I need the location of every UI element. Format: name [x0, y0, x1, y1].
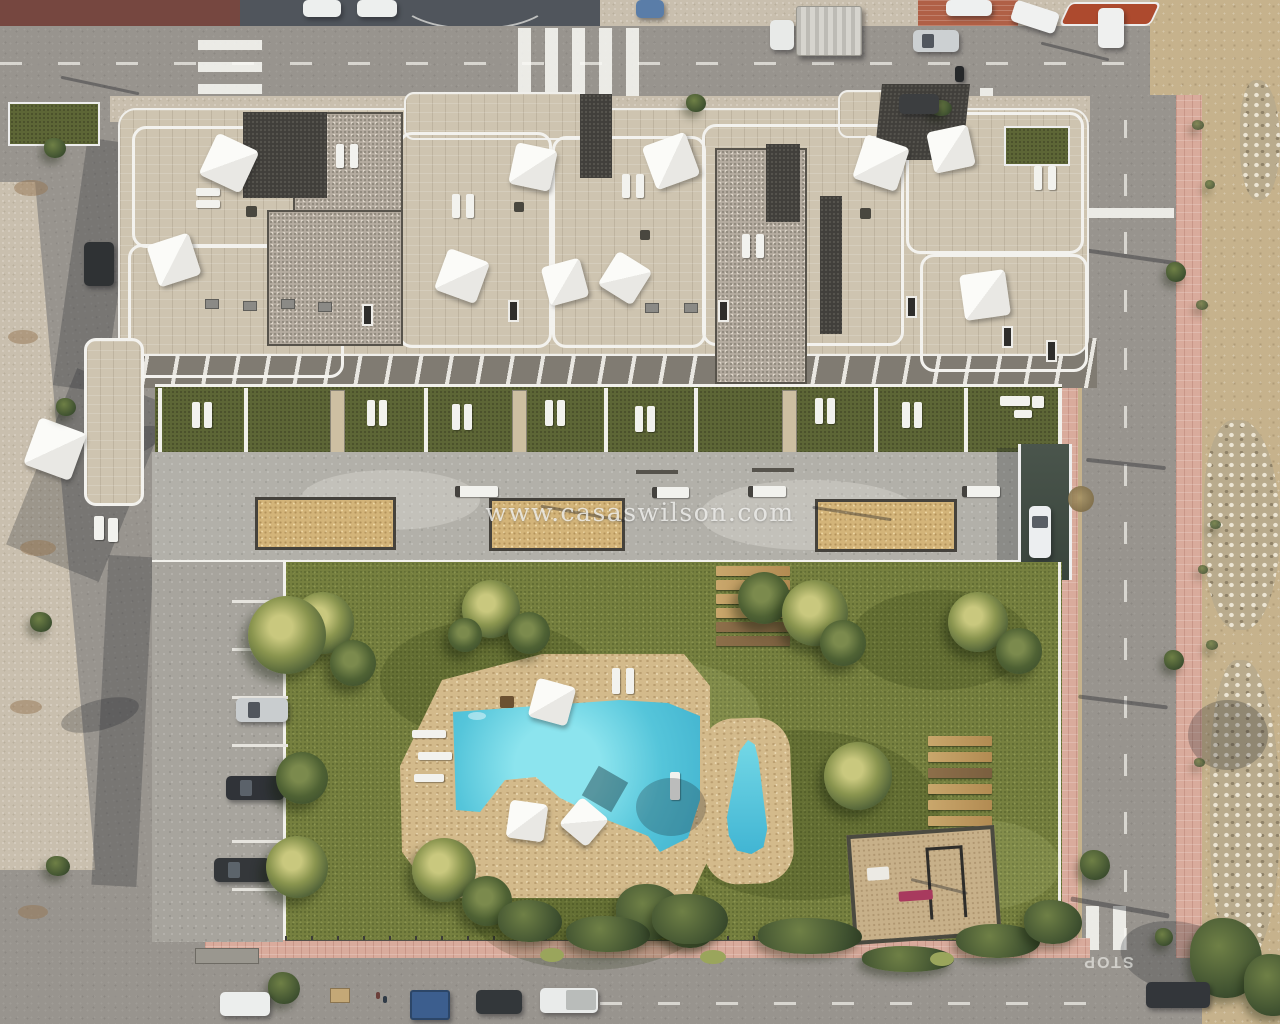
poolside-lounger — [418, 752, 452, 760]
parked-car — [220, 992, 270, 1016]
garden-lounger — [192, 402, 200, 428]
parked-car — [84, 242, 114, 286]
pool-steps — [468, 712, 486, 720]
right-road — [1082, 92, 1178, 1024]
garden-divider-wall — [244, 388, 248, 454]
sun-lounger — [336, 144, 344, 168]
garden-lounger — [367, 400, 375, 426]
wood-bench — [928, 800, 992, 810]
roof-vent — [243, 301, 257, 311]
pedestrian — [383, 996, 387, 1003]
street-tree — [1164, 650, 1184, 670]
aerial-development-render: www.casaswilson.com STOP — [0, 0, 1280, 1024]
sun-lounger — [196, 200, 220, 208]
stop-road-marking: STOP — [1078, 952, 1138, 970]
scrub-tuft — [1196, 300, 1208, 310]
scrub-tuft — [1198, 565, 1208, 574]
stairwell-core — [580, 94, 612, 178]
terrace-bench — [455, 486, 498, 497]
garden-divider-pillar — [512, 390, 527, 456]
playground-bench — [898, 889, 933, 901]
palm-tree — [820, 620, 866, 666]
moving-car — [913, 30, 959, 52]
parasol — [959, 269, 1011, 321]
parked-car — [1098, 8, 1124, 48]
bottom-road-center-line — [600, 1002, 1120, 1005]
rocky-ground-patch — [1240, 80, 1280, 200]
garden-lounger — [557, 400, 565, 426]
parasol — [506, 800, 549, 843]
palm-tree — [276, 752, 328, 804]
parked-car — [236, 698, 288, 722]
wood-bench — [928, 736, 992, 746]
terrace-bench — [748, 486, 786, 497]
palm-tree — [266, 836, 328, 898]
poolside-lounger — [414, 774, 444, 782]
roof-vent — [205, 299, 219, 309]
garden-lounger — [914, 402, 922, 428]
parked-car — [303, 0, 341, 17]
crosswalk-right-upper — [1084, 196, 1174, 218]
skylight-window — [718, 300, 729, 322]
pedestrian — [376, 992, 380, 999]
garden-divider-wall — [158, 388, 162, 454]
garden-lounger — [815, 398, 823, 424]
garden-lounger — [379, 400, 387, 426]
street-tree — [30, 612, 52, 632]
sun-lounger — [350, 144, 358, 168]
terrace-bench — [962, 486, 1000, 497]
sun-lounger — [1034, 166, 1042, 190]
garden-lounger — [647, 406, 655, 432]
skylight-window — [1046, 340, 1057, 362]
swing-frame-post — [959, 845, 967, 917]
terrace-table — [514, 202, 524, 212]
sun-lounger — [742, 234, 750, 258]
car-on-ramp — [1029, 506, 1051, 558]
street-tree — [1155, 928, 1173, 946]
right-road-east-sidewalk — [1176, 92, 1204, 1024]
poolside-table — [500, 696, 514, 708]
truck-cab — [770, 20, 794, 50]
parasol — [508, 142, 558, 192]
scrub-tuft — [1210, 520, 1221, 529]
car-windshield — [922, 34, 934, 48]
sun-lounger — [452, 194, 460, 218]
right-road-west-sidewalk — [1060, 310, 1078, 940]
motorcycle — [955, 66, 964, 82]
terrace-table — [640, 230, 650, 240]
palm-tree — [996, 628, 1042, 674]
wood-bench — [928, 752, 992, 762]
garden-sofa-set — [1000, 396, 1030, 406]
sand-planter-box — [815, 499, 957, 552]
roof-vent — [318, 302, 332, 312]
car-windshield — [248, 702, 260, 718]
car-windshield — [228, 862, 240, 878]
palm-tree — [508, 612, 550, 654]
garden-sofa-set — [1014, 410, 1032, 418]
pickup-bed — [566, 990, 596, 1010]
red-painted-pavement — [0, 0, 240, 28]
wood-bench — [928, 784, 992, 794]
poolside-lounger — [612, 668, 620, 694]
garden-lounger — [464, 404, 472, 430]
palm-tree — [824, 742, 892, 810]
lawn-east-wall — [1058, 562, 1061, 940]
skylight-window — [508, 300, 519, 322]
dirt-patch — [14, 180, 48, 196]
parked-van — [946, 0, 992, 16]
skylight-window — [1002, 326, 1013, 348]
dumpster — [410, 990, 450, 1020]
garden-divider-wall — [424, 388, 428, 454]
street-tree — [268, 972, 300, 1004]
sun-lounger — [466, 194, 474, 218]
sand-planter-box — [255, 497, 396, 550]
wood-bench — [928, 768, 992, 778]
street-tree — [1080, 850, 1110, 880]
crosswalk-top-left — [198, 30, 262, 94]
light-shrub — [700, 950, 726, 964]
hedge-bush — [566, 916, 650, 952]
stairwell-core — [820, 196, 842, 334]
palm-tree — [330, 640, 376, 686]
dirt-patch — [10, 700, 42, 714]
parked-car — [899, 94, 939, 114]
garden-divider-wall — [964, 388, 968, 454]
street-tree — [46, 856, 70, 876]
light-shrub — [930, 952, 954, 966]
sun-lounger — [108, 518, 118, 542]
top-road-center-line — [0, 62, 1280, 65]
sun-lounger — [196, 188, 220, 196]
garden-lounger — [635, 406, 643, 432]
sun-lounger — [636, 174, 644, 198]
dirt-patch — [8, 330, 38, 344]
scrub-tuft — [1205, 180, 1215, 189]
garden-top-wall — [155, 384, 1062, 387]
truck-container — [796, 6, 862, 56]
palm-shadow-on-deck — [636, 778, 706, 836]
parasol — [926, 124, 976, 174]
parking-space-line — [232, 744, 288, 747]
hedge-bush — [758, 918, 862, 954]
garden-divider-wall — [604, 388, 608, 454]
garden-lounger — [827, 398, 835, 424]
car-windshield — [1032, 516, 1048, 528]
play-table — [867, 866, 890, 881]
wood-step — [716, 636, 790, 646]
roof-palm-tuft — [686, 94, 706, 112]
palm-tree — [248, 596, 326, 674]
garden-lounger — [545, 400, 553, 426]
street-tree — [44, 138, 66, 158]
roof-vent — [684, 303, 698, 313]
crosswalk-top-main — [518, 28, 640, 96]
terrace-table — [246, 206, 257, 217]
palm-tree — [448, 618, 482, 652]
dirt-patch — [18, 905, 48, 919]
wood-bench — [928, 816, 992, 826]
street-tree — [56, 398, 76, 416]
stairwell-core — [766, 144, 800, 222]
poolside-lounger — [626, 668, 634, 694]
parked-car — [214, 858, 270, 882]
parked-car — [636, 0, 664, 18]
hedge-bush — [1024, 900, 1082, 944]
swing-frame-bar — [925, 845, 962, 851]
parked-car — [357, 0, 397, 17]
roof-vent — [281, 299, 295, 309]
street-tree — [1166, 262, 1186, 282]
dirt-patch — [20, 540, 56, 556]
garden-divider-wall — [874, 388, 878, 454]
gravel-roof-patch — [267, 210, 403, 346]
light-shrub — [540, 948, 564, 962]
garden-sofa-set — [1032, 396, 1044, 408]
private-gardens-row — [155, 386, 1062, 454]
hedge-bush — [498, 900, 562, 942]
bare-street-tree — [1068, 486, 1094, 512]
parked-car — [1146, 982, 1210, 1008]
sun-lounger — [94, 516, 104, 540]
wood-step — [716, 622, 790, 632]
skylight-window — [906, 296, 917, 318]
poolside-lounger — [412, 730, 446, 738]
concrete-block-bench — [195, 948, 259, 964]
scrub-tuft — [1192, 120, 1204, 130]
scrub-tuft — [1194, 758, 1205, 767]
garden-lounger — [452, 404, 460, 430]
garden-divider-pillar — [330, 390, 345, 456]
drain-strip — [636, 470, 678, 474]
scrub-tuft — [1206, 640, 1218, 650]
skylight-window — [362, 304, 373, 326]
sun-lounger — [1048, 166, 1056, 190]
terrace-bench — [652, 487, 689, 498]
terrace-table — [860, 208, 871, 219]
left-protruding-terrace — [84, 338, 144, 506]
right-road-center-line — [1124, 120, 1127, 950]
car-windshield — [240, 780, 252, 796]
watermark-text: www.casaswilson.com — [460, 498, 820, 527]
garden-lounger — [902, 402, 910, 428]
garden-divider-pillar — [782, 390, 797, 456]
sun-lounger — [622, 174, 630, 198]
garden-divider-wall — [694, 388, 698, 454]
parked-car — [476, 990, 522, 1014]
roof-vent — [645, 303, 659, 313]
garden-lounger — [204, 402, 212, 428]
sun-lounger — [756, 234, 764, 258]
utility-cart — [330, 988, 350, 1003]
drain-strip — [752, 468, 794, 472]
roof-hedge — [1004, 126, 1070, 166]
hedge-bush — [652, 894, 728, 944]
